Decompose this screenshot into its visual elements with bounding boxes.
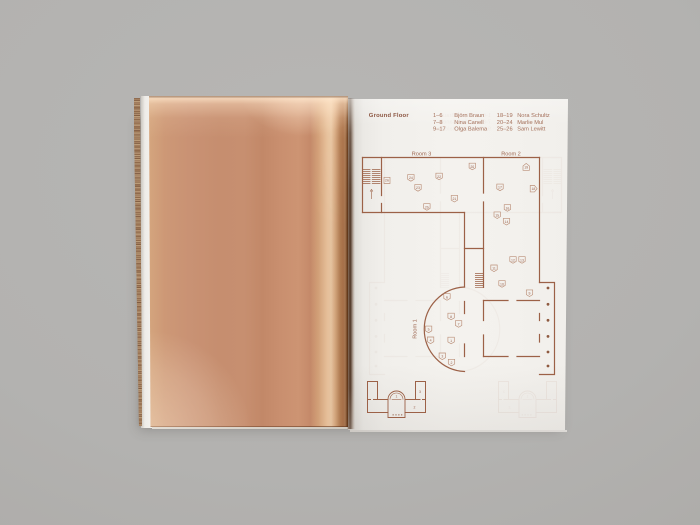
svg-text:5: 5: [428, 328, 430, 332]
svg-text:25: 25: [425, 205, 429, 209]
svg-text:Room 2: Room 2: [501, 151, 521, 157]
svg-text:25–26: 25–26: [497, 127, 513, 133]
svg-text:8: 8: [450, 315, 452, 319]
svg-text:7: 7: [458, 322, 460, 326]
svg-text:Sam Lewitt: Sam Lewitt: [517, 126, 546, 133]
svg-text:17: 17: [498, 186, 502, 190]
svg-text:23: 23: [416, 186, 420, 190]
svg-text:20: 20: [470, 165, 474, 169]
svg-text:2: 2: [451, 361, 453, 365]
svg-text:22: 22: [437, 175, 441, 179]
svg-text:7-8: 7-8: [483, 120, 491, 126]
svg-text:Room 1: Room 1: [413, 319, 419, 339]
svg-text:11: 11: [492, 267, 496, 271]
svg-text:18–19: 18–19: [497, 113, 513, 119]
svg-text:4: 4: [430, 339, 432, 343]
svg-text:24: 24: [409, 176, 413, 180]
svg-text:9: 9: [529, 292, 531, 296]
svg-text:Björn Braun: Björn Braun: [454, 112, 484, 119]
svg-text:3: 3: [441, 355, 443, 359]
svg-text:Ground Floor: Ground Floor: [369, 112, 410, 119]
svg-text:Olga Balema: Olga Balema: [454, 126, 488, 133]
svg-text:14: 14: [505, 220, 509, 224]
svg-text:10: 10: [500, 282, 504, 286]
svg-text:19: 19: [524, 165, 528, 169]
svg-text:18: 18: [531, 187, 535, 191]
svg-text:6: 6: [446, 295, 448, 299]
svg-text:Marlie Mul: Marlie Mul: [517, 119, 543, 126]
svg-text:20–24: 20–24: [497, 120, 513, 126]
svg-text:13: 13: [520, 258, 524, 262]
svg-text:1–6: 1–6: [433, 113, 443, 119]
svg-text:12: 12: [511, 258, 515, 262]
svg-text:21: 21: [452, 197, 456, 201]
svg-text:15: 15: [495, 214, 499, 218]
svg-text:Nina Canell: Nina Canell: [454, 119, 483, 126]
svg-text:Nora Schultz: Nora Schultz: [517, 112, 550, 119]
svg-text:Room 3: Room 3: [412, 151, 432, 157]
svg-text:7–8: 7–8: [433, 120, 443, 126]
svg-text:26: 26: [385, 179, 389, 183]
svg-text:9–17: 9–17: [433, 127, 446, 133]
svg-text:1: 1: [450, 339, 452, 343]
svg-text:16: 16: [505, 206, 509, 210]
